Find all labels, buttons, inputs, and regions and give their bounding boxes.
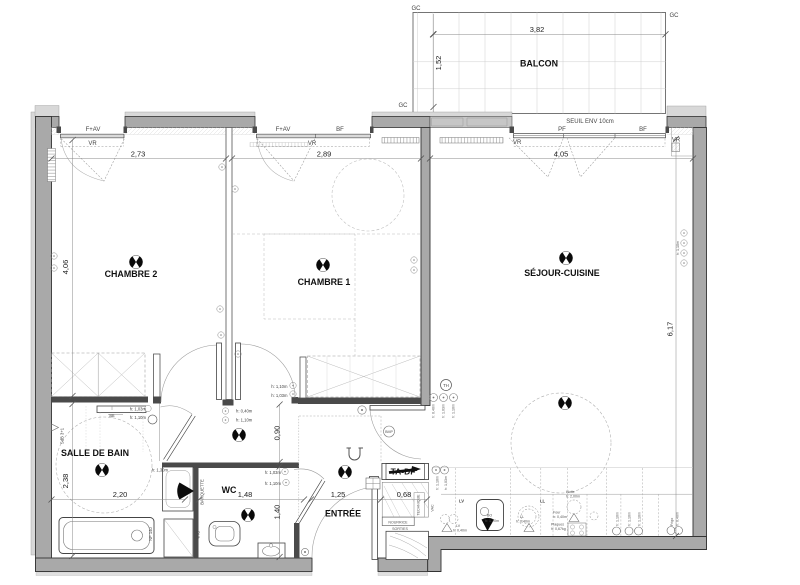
svg-text:NOURRICE: NOURRICE <box>388 521 408 525</box>
svg-text:SÉJOUR-CUISINE: SÉJOUR-CUISINE <box>524 268 600 278</box>
svg-text:1,52: 1,52 <box>434 56 443 71</box>
svg-text:h: 1,20m: h: 1,20m <box>485 519 499 523</box>
svg-text:1,25: 1,25 <box>331 490 346 499</box>
svg-text:CHAMBRE 1: CHAMBRE 1 <box>298 277 351 287</box>
svg-text:h: 1,03m: h: 1,03m <box>130 407 147 412</box>
svg-text:LL: LL <box>520 515 524 519</box>
svg-text:VAC: VAC <box>196 531 201 539</box>
svg-text:h: 0,40m: h: 0,40m <box>236 409 253 414</box>
svg-text:h: 1,03m: h: 1,03m <box>265 470 282 475</box>
svg-text:LV: LV <box>456 524 461 528</box>
svg-text:SALLE DE BAIN: SALLE DE BAIN <box>61 448 129 458</box>
svg-text:TH: TH <box>443 383 449 388</box>
svg-text:6,17: 6,17 <box>666 322 675 337</box>
svg-text:2,38: 2,38 <box>61 474 70 489</box>
svg-text:CHAMBRE 2: CHAMBRE 2 <box>105 269 158 279</box>
svg-text:BO: BO <box>487 514 492 518</box>
svg-text:BF: BF <box>639 127 647 133</box>
svg-text:0,90: 0,90 <box>272 426 281 441</box>
svg-text:2,89: 2,89 <box>317 150 332 159</box>
svg-text:h: 1,10m: h: 1,10m <box>676 241 680 255</box>
svg-text:h: 1,10m: h: 1,10m <box>628 512 632 526</box>
svg-text:h: 0,40m: h: 0,40m <box>431 404 435 418</box>
svg-text:h: 0,67kg: h: 0,67kg <box>551 527 566 531</box>
svg-text:h: 1,03m: h: 1,03m <box>441 404 445 418</box>
svg-text:h: 0,40m: h: 0,40m <box>453 529 467 533</box>
svg-text:h: 2,00m: h: 2,00m <box>566 495 580 499</box>
svg-text:VR: VR <box>513 140 522 146</box>
svg-text:h: 1,10m: h: 1,10m <box>236 418 253 423</box>
svg-text:VR: VR <box>88 141 97 147</box>
svg-text:2,20: 2,20 <box>113 490 128 499</box>
svg-text:h: 1,10m: h: 1,10m <box>271 384 288 389</box>
svg-text:LL: LL <box>540 499 546 504</box>
svg-text:1,48: 1,48 <box>238 490 253 499</box>
svg-text:LV: LV <box>459 499 464 504</box>
svg-text:h: 1,03m: h: 1,03m <box>444 476 448 490</box>
svg-text:0,68: 0,68 <box>397 490 412 499</box>
svg-text:h: 0,40m: h: 0,40m <box>516 520 530 524</box>
svg-text:SORTIES: SORTIES <box>392 527 408 531</box>
svg-text:h: 1,10m: h: 1,10m <box>435 476 439 490</box>
svg-text:h: 1,10m: h: 1,10m <box>451 404 455 418</box>
svg-text:TECHNIQUE: TECHNIQUE <box>416 494 420 516</box>
svg-text:Frigo: Frigo <box>670 518 674 526</box>
svg-text:SEUIL ENV 10cm: SEUIL ENV 10cm <box>566 119 613 125</box>
svg-text:NF 140: NF 140 <box>148 526 153 540</box>
svg-text:h: 1,10m: h: 1,10m <box>616 512 620 526</box>
svg-text:2,73: 2,73 <box>131 150 146 159</box>
svg-text:VR: VR <box>308 141 317 147</box>
svg-text:GC: GC <box>670 13 680 19</box>
svg-text:BMP: BMP <box>385 430 393 434</box>
svg-text:BF: BF <box>336 127 344 133</box>
svg-text:GC: GC <box>412 6 422 12</box>
svg-text:BANQUETTE: BANQUETTE <box>200 479 205 505</box>
svg-text:h: 1,10m: h: 1,10m <box>638 512 642 526</box>
svg-text:VAC: VAC <box>431 504 435 512</box>
svg-text:WC: WC <box>222 485 237 495</box>
svg-text:4,05: 4,05 <box>554 150 569 159</box>
svg-text:F+AV: F+AV <box>86 127 101 133</box>
svg-text:GC: GC <box>399 103 409 109</box>
svg-text:h: 1,10m: h: 1,10m <box>265 481 282 486</box>
svg-text:Hotte: Hotte <box>566 490 575 494</box>
svg-text:SdB 3+1: SdB 3+1 <box>60 427 65 444</box>
svg-text:h: 1,03m: h: 1,03m <box>271 393 288 398</box>
svg-text:F+AV: F+AV <box>276 127 291 133</box>
svg-text:3,82: 3,82 <box>530 25 545 34</box>
svg-text:1,40: 1,40 <box>272 505 281 520</box>
svg-text:h: 1,30m: h: 1,30m <box>152 468 169 473</box>
svg-text:h: 1,10m: h: 1,10m <box>130 415 147 420</box>
svg-text:PF: PF <box>558 127 566 133</box>
svg-text:h: 0,40m: h: 0,40m <box>553 515 567 519</box>
svg-text:BALCON: BALCON <box>520 59 558 69</box>
svg-text:4,06: 4,06 <box>61 260 70 275</box>
svg-text:ENTRÉE: ENTRÉE <box>325 509 361 519</box>
